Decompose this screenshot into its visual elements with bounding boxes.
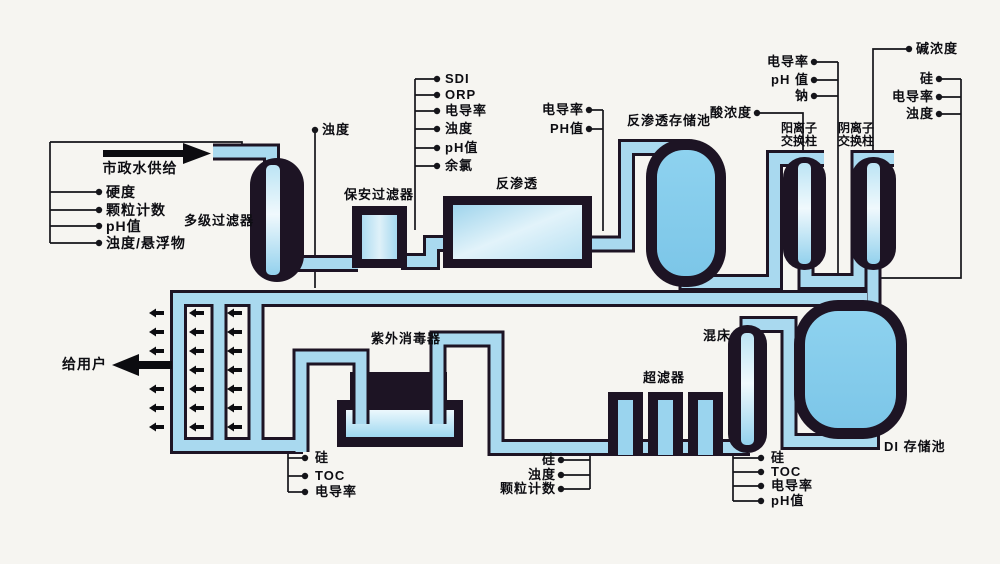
ultrafilter-modules [608, 392, 723, 455]
supply-arrow [103, 143, 211, 164]
process-flow-diagram: 市政水供给 给用户 硬度 颗粒计数 pH值 浊度/悬浮物 浊度 SDI ORP … [0, 0, 1000, 564]
to-users-arrow [112, 354, 172, 376]
diagram-canvas [0, 0, 1000, 564]
multistage-filter-vessel [250, 158, 304, 282]
mixed-bed-vessel [728, 325, 767, 453]
di-storage-tank-vessel [794, 300, 907, 439]
ro-storage-tank-vessel [646, 139, 726, 287]
reverse-osmosis-vessel [443, 196, 592, 268]
cation-exchange-column-vessel [783, 157, 826, 270]
security-filter-vessel [352, 206, 407, 268]
anion-exchange-column-vessel [851, 157, 896, 270]
distribution-arrows [149, 309, 242, 432]
